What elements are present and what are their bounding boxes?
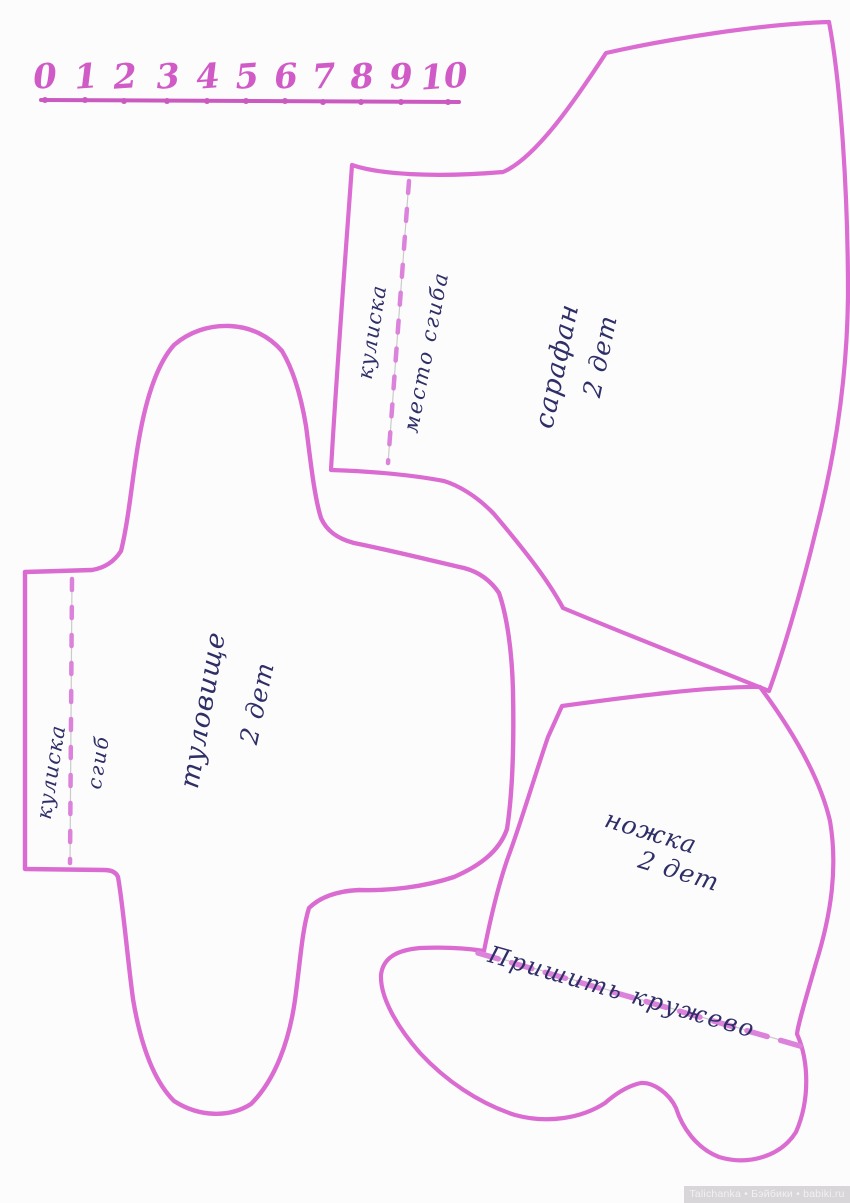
ruler-number: 0: [32, 56, 58, 98]
ruler-number: 9: [388, 56, 414, 98]
ruler-number: 5: [234, 56, 260, 98]
ruler-number: 1: [73, 56, 99, 98]
ruler-number: 7: [311, 56, 337, 98]
ruler-number: 3: [155, 56, 181, 98]
torso-outline: [25, 326, 513, 1114]
scanned-sewing-pattern-sheet: 0 1 2 3 4 5 6 7 8 9 10 кулиска место сги…: [0, 0, 850, 1203]
ruler-number: 10: [419, 55, 469, 98]
ruler-number: 4: [195, 56, 221, 98]
ruler-number: 2: [112, 56, 138, 98]
ruler-line: [41, 100, 459, 102]
leg-outline: [381, 687, 833, 1160]
ruler-number: 8: [349, 56, 375, 98]
watermark: Talichanka • Бэйбики • babiki.ru: [684, 1186, 850, 1203]
ruler-number: 6: [273, 56, 299, 98]
